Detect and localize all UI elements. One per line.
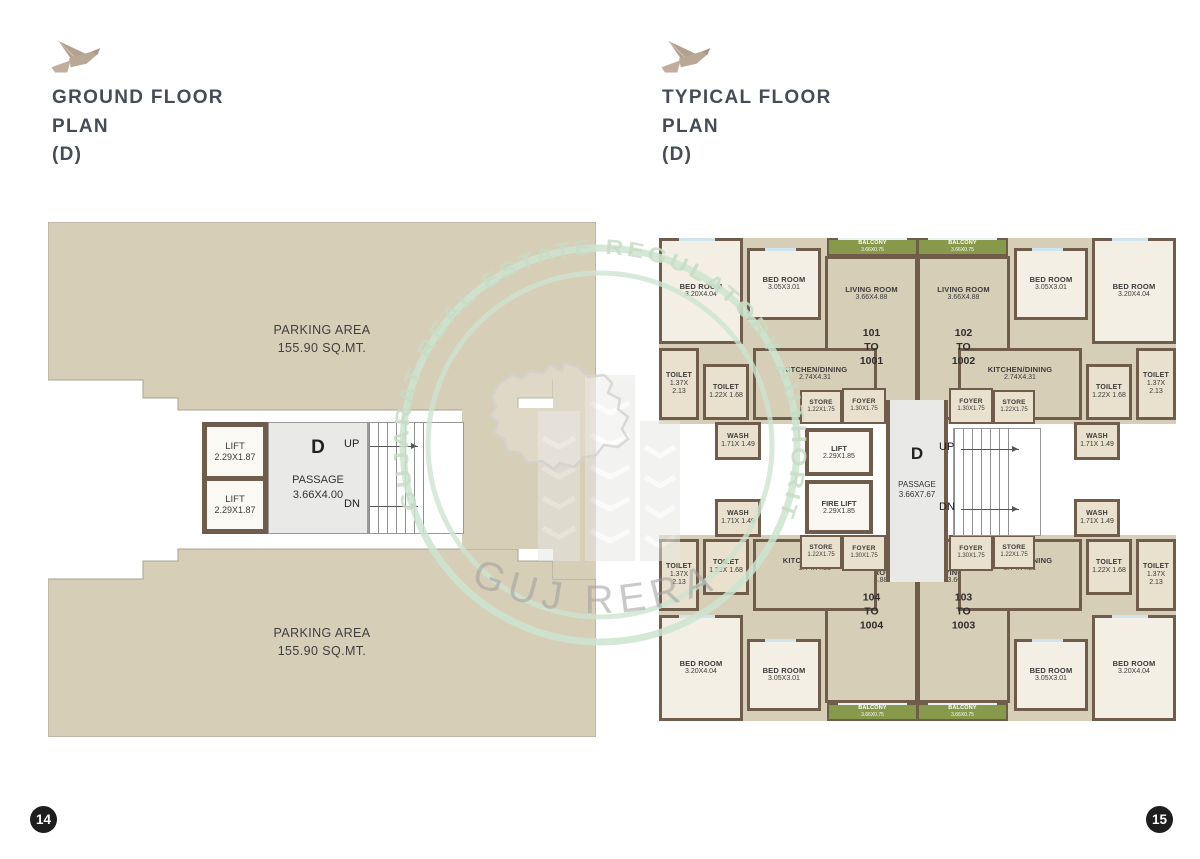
stairs-dn-label: DN	[939, 501, 955, 513]
room-dim: 1.71X 1.49	[1080, 441, 1114, 449]
room-dim: 1.71X 1.49	[721, 518, 755, 526]
lift-room: LIFT 2.29X1.87	[207, 481, 263, 530]
room-label: BED ROOM	[1030, 275, 1073, 284]
room-label: BED ROOM	[763, 666, 806, 675]
fire-lift-dim: 2.29X1.85	[823, 508, 855, 515]
room-dim: 1.37X 2.13	[1141, 380, 1171, 396]
room-label: TOILET	[713, 384, 739, 393]
room-toilet-2: TOILET1.22X 1.68	[703, 539, 749, 595]
room-dim: 3.66X0.75	[861, 247, 884, 253]
lift-label: LIFT	[831, 444, 847, 453]
room-dim: 2.74X4.31	[1004, 374, 1036, 383]
lift-dim: 2.29X1.85	[823, 453, 855, 460]
stairs-up-label: UP	[344, 438, 359, 450]
parking-label-bottom: PARKING AREA 155.90 SQ.MT.	[197, 625, 447, 660]
passage-dim: 3.66X4.00	[292, 488, 344, 503]
passage-text: PASSAGE	[898, 480, 936, 490]
room-toilet-1: TOILET1.37X 2.13	[659, 539, 699, 611]
passage-text: PASSAGE	[292, 473, 344, 488]
staircase	[368, 422, 464, 534]
parking-area-top	[48, 222, 596, 410]
parking-area-text: PARKING AREA	[197, 322, 447, 340]
room-store: STORE1.22X1.75	[993, 535, 1035, 569]
stairs-up-arrow	[961, 449, 1019, 450]
room-dim: 1.22X1.75	[1000, 552, 1027, 560]
room-store: STORE1.22X1.75	[993, 390, 1035, 424]
room-dim: 1.37X 2.13	[664, 380, 694, 396]
room-label: TOILET	[1143, 372, 1169, 381]
room-label: WASH	[727, 510, 749, 519]
lift-room: LIFT 2.29X1.85	[805, 428, 873, 476]
lift-label: LIFT	[225, 441, 245, 452]
room-dim: 1.30X1.75	[957, 553, 984, 561]
passage-room: D PASSAGE 3.66X7.67	[886, 400, 948, 582]
room-bedroom-small: BED ROOM3.05X3.01	[1014, 248, 1088, 320]
parking-label-top: PARKING AREA 155.90 SQ.MT.	[197, 322, 447, 357]
room-label: WASH	[1086, 433, 1108, 442]
page-number-text: 15	[1152, 812, 1167, 827]
page-number-text: 14	[36, 812, 51, 827]
origami-bird-logo	[48, 34, 104, 76]
title-line: GROUND FLOOR	[52, 84, 224, 113]
room-dim: 3.66X0.75	[951, 712, 974, 718]
ground-floor-plan: PARKING AREA 155.90 SQ.MT. PARKING AREA …	[48, 222, 596, 737]
room-label: BED ROOM	[680, 659, 723, 668]
room-label: BED ROOM	[763, 275, 806, 284]
room-dim: 3.66X4.88	[856, 294, 888, 303]
room-label: TOILET	[666, 563, 692, 572]
room-label: BED ROOM	[680, 282, 723, 291]
unit-number: 103TO1003	[917, 590, 1010, 633]
passage-label: PASSAGE 3.66X7.67	[898, 480, 936, 501]
room-bedroom-small: BED ROOM3.05X3.01	[747, 639, 821, 711]
plan-connector	[553, 378, 596, 579]
unit-number: 101TO1001	[825, 326, 918, 369]
room-label: FOYER	[959, 545, 982, 553]
room-toilet-1: TOILET1.37X 2.13	[659, 348, 699, 420]
fire-lift-room: FIRE LIFT 2.29X1.85	[805, 480, 873, 534]
room-dim: 1.22X1.75	[807, 552, 834, 560]
unit-number: 104TO1004	[825, 590, 918, 633]
room-dim: 3.05X3.01	[768, 284, 800, 293]
room-dim: 1.30X1.75	[850, 553, 877, 561]
room-wash: WASH1.71X 1.49	[1074, 499, 1120, 537]
room-label: FOYER	[852, 398, 875, 406]
lift-label: LIFT	[225, 494, 245, 505]
room-foyer: FOYER1.30X1.75	[949, 388, 993, 424]
unit-102: BED ROOM3.20X4.04BED ROOM3.05X3.01LIVING…	[917, 222, 1180, 462]
room-label: LIVING ROOM	[937, 285, 990, 294]
room-label: BALCONY	[858, 705, 887, 712]
room-label: STORE	[1002, 399, 1025, 407]
room-bedroom-large: BED ROOM3.20X4.04	[659, 238, 743, 344]
room-label: TOILET	[1143, 563, 1169, 572]
unit-number: 102TO1002	[917, 326, 1010, 369]
stairs-up-label: UP	[939, 441, 954, 453]
lift-dim: 2.29X1.87	[214, 505, 255, 515]
room-dim: 3.20X4.04	[1118, 668, 1150, 677]
staircase	[953, 428, 1041, 536]
typical-floor-plan: BED ROOM3.20X4.04BED ROOM3.05X3.01LIVING…	[655, 222, 1180, 737]
room-label: TOILET	[1096, 384, 1122, 393]
lift-block: LIFT 2.29X1.87 LIFT 2.29X1.87	[202, 422, 268, 534]
room-label: BALCONY	[858, 240, 887, 247]
title-line: (D)	[662, 141, 832, 170]
room-bedroom-large: BED ROOM3.20X4.04	[659, 615, 743, 721]
room-foyer: FOYER1.30X1.75	[949, 535, 993, 571]
room-dim: 3.20X4.04	[685, 668, 717, 677]
fire-lift-label: FIRE LIFT	[822, 499, 857, 508]
block-letter: D	[311, 437, 325, 459]
parking-area-text: PARKING AREA	[197, 625, 447, 643]
room-toilet-2: TOILET1.22X 1.68	[703, 364, 749, 420]
room-dim: 3.05X3.01	[1035, 675, 1067, 684]
origami-bird-logo	[658, 34, 714, 76]
room-dim: 3.05X3.01	[1035, 284, 1067, 293]
room-dim: 1.22X 1.68	[709, 392, 743, 400]
room-label: WASH	[1086, 510, 1108, 519]
stairs-up-arrow	[370, 446, 418, 447]
room-dim: 1.30X1.75	[957, 406, 984, 414]
room-dim: 3.66X0.75	[861, 712, 884, 718]
room-wash: WASH1.71X 1.49	[715, 422, 761, 460]
room-toilet-1: TOILET1.37X 2.13	[1136, 348, 1176, 420]
stairs-dn-arrow	[370, 506, 418, 507]
page-number-right: 15	[1146, 806, 1173, 833]
page-number-left: 14	[30, 806, 57, 833]
room-label: FOYER	[959, 398, 982, 406]
room-dim: 1.37X 2.13	[664, 571, 694, 587]
room-foyer: FOYER1.30X1.75	[842, 535, 886, 571]
room-dim: 2.74X4.31	[799, 374, 831, 383]
block-letter: D	[911, 444, 923, 464]
room-dim: 3.66X0.75	[951, 247, 974, 253]
ground-floor-title: GROUND FLOOR PLAN (D)	[52, 84, 224, 170]
room-dim: 1.22X1.75	[1000, 407, 1027, 415]
room-balcony: BALCONY3.66X0.75	[917, 238, 1008, 256]
room-bedroom-large: BED ROOM3.20X4.04	[1092, 615, 1176, 721]
title-line: (D)	[52, 141, 224, 170]
unit-101: BED ROOM3.20X4.04BED ROOM3.05X3.01LIVING…	[655, 222, 918, 462]
room-dim: 3.20X4.04	[1118, 291, 1150, 300]
room-label: WASH	[727, 433, 749, 442]
room-dim: 3.66X4.88	[948, 294, 980, 303]
room-dim: 1.22X1.75	[807, 407, 834, 415]
room-label: FOYER	[852, 545, 875, 553]
room-label: BALCONY	[948, 705, 977, 712]
room-toilet-2: TOILET1.22X 1.68	[1086, 539, 1132, 595]
brochure-page: GROUND FLOOR PLAN (D) TYPICAL FLOOR PLAN…	[0, 0, 1200, 859]
parking-area-size: 155.90 SQ.MT.	[197, 340, 447, 358]
room-dim: 1.22X 1.68	[709, 567, 743, 575]
room-label: STORE	[809, 399, 832, 407]
room-label: BED ROOM	[1113, 282, 1156, 291]
typical-floor-title: TYPICAL FLOOR PLAN (D)	[662, 84, 832, 170]
room-balcony: BALCONY3.66X0.75	[827, 238, 918, 256]
room-label: LIVING ROOM	[845, 285, 898, 294]
stairs-dn-arrow	[961, 509, 1019, 510]
room-dim: 1.22X 1.68	[1092, 567, 1126, 575]
room-balcony: BALCONY3.66X0.75	[827, 703, 918, 721]
room-label: TOILET	[666, 372, 692, 381]
lift-room: LIFT 2.29X1.87	[207, 427, 263, 481]
passage-dim: 3.66X7.67	[898, 490, 936, 500]
room-bedroom-small: BED ROOM3.05X3.01	[747, 248, 821, 320]
room-dim: 3.05X3.01	[768, 675, 800, 684]
room-label: BED ROOM	[1113, 659, 1156, 668]
title-line: TYPICAL FLOOR	[662, 84, 832, 113]
lift-dim: 2.29X1.87	[214, 452, 255, 462]
room-foyer: FOYER1.30X1.75	[842, 388, 886, 424]
room-label: STORE	[809, 544, 832, 552]
room-dim: 1.71X 1.49	[1080, 518, 1114, 526]
room-label: BED ROOM	[1030, 666, 1073, 675]
room-dim: 1.71X 1.49	[721, 441, 755, 449]
room-bedroom-small: BED ROOM3.05X3.01	[1014, 639, 1088, 711]
room-dim: 1.30X1.75	[850, 406, 877, 414]
passage-label: PASSAGE 3.66X4.00	[292, 473, 344, 503]
room-wash: WASH1.71X 1.49	[1074, 422, 1120, 460]
parking-area-size: 155.90 SQ.MT.	[197, 643, 447, 661]
room-dim: 1.37X 2.13	[1141, 571, 1171, 587]
room-balcony: BALCONY3.66X0.75	[917, 703, 1008, 721]
room-dim: 3.20X4.04	[685, 291, 717, 300]
title-line: PLAN	[52, 113, 224, 142]
room-dim: 1.22X 1.68	[1092, 392, 1126, 400]
room-store: STORE1.22X1.75	[800, 390, 842, 424]
stairs-dn-label: DN	[344, 498, 360, 510]
unit-104: BED ROOM3.20X4.04BED ROOM3.05X3.01LIVING…	[655, 497, 918, 737]
title-line: PLAN	[662, 113, 832, 142]
room-label: TOILET	[1096, 559, 1122, 568]
room-label: BALCONY	[948, 240, 977, 247]
room-label: TOILET	[713, 559, 739, 568]
room-bedroom-large: BED ROOM3.20X4.04	[1092, 238, 1176, 344]
room-toilet-2: TOILET1.22X 1.68	[1086, 364, 1132, 420]
room-store: STORE1.22X1.75	[800, 535, 842, 569]
room-toilet-1: TOILET1.37X 2.13	[1136, 539, 1176, 611]
room-wash: WASH1.71X 1.49	[715, 499, 761, 537]
room-label: STORE	[1002, 544, 1025, 552]
